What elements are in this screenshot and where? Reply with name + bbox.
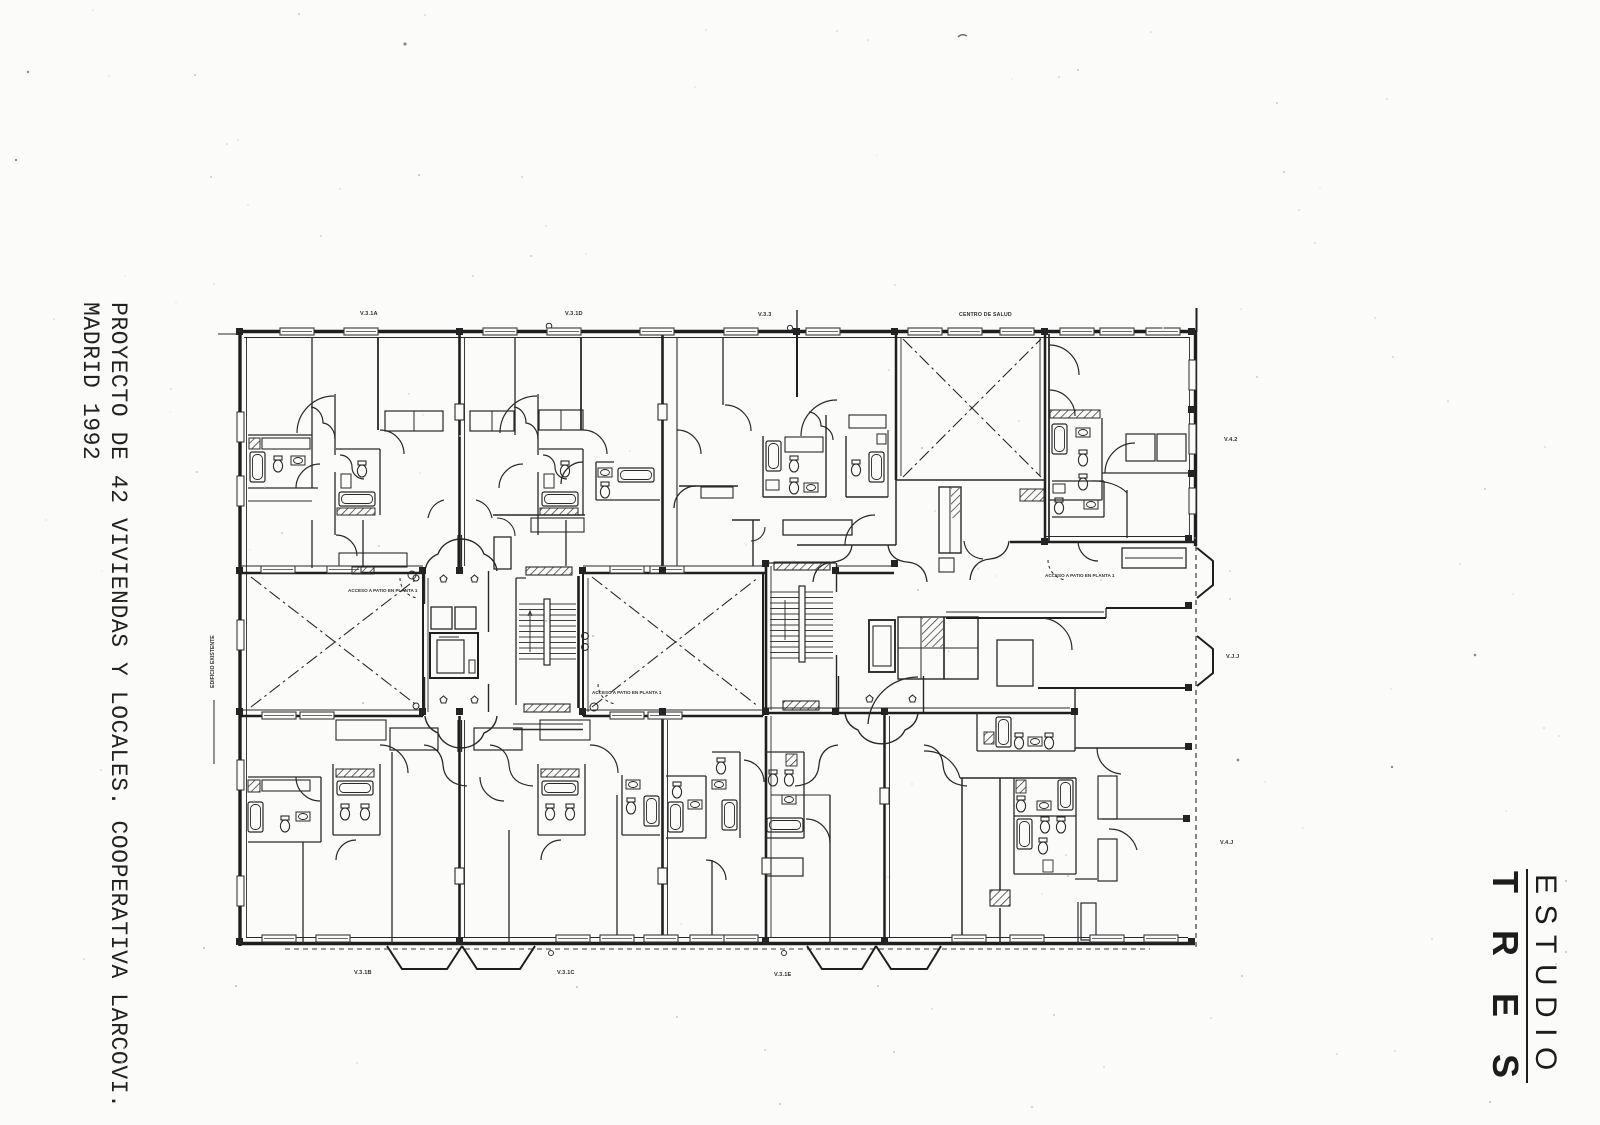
svg-text:V.3.3: V.3.3 [758,312,772,318]
svg-text:V.3.1B: V.3.1B [354,970,372,976]
svg-text:V.3.1A: V.3.1A [360,311,378,317]
svg-text:ACCESO A PATIO EN PLANTA 1: ACCESO A PATIO EN PLANTA 1 [1045,573,1115,578]
svg-text:V.4.2: V.4.2 [1224,437,1238,443]
svg-text:V.3.1C: V.3.1C [557,970,575,976]
svg-text:CENTRO DE SALUD: CENTRO DE SALUD [959,312,1012,318]
svg-text:V.3.1D: V.3.1D [565,311,583,317]
svg-text:V.4.J: V.4.J [1220,840,1233,846]
svg-text:V.J.J: V.J.J [1226,654,1239,660]
svg-text:ACCESO A PATIO EN PLANTA 1: ACCESO A PATIO EN PLANTA 1 [592,690,662,695]
svg-text:V.3.1E: V.3.1E [774,972,792,978]
svg-text:ACCESO A PATIO EN PLANTA 1: ACCESO A PATIO EN PLANTA 1 [348,588,418,593]
svg-text:EDIFICIO EXISTENTE: EDIFICIO EXISTENTE [210,635,216,688]
